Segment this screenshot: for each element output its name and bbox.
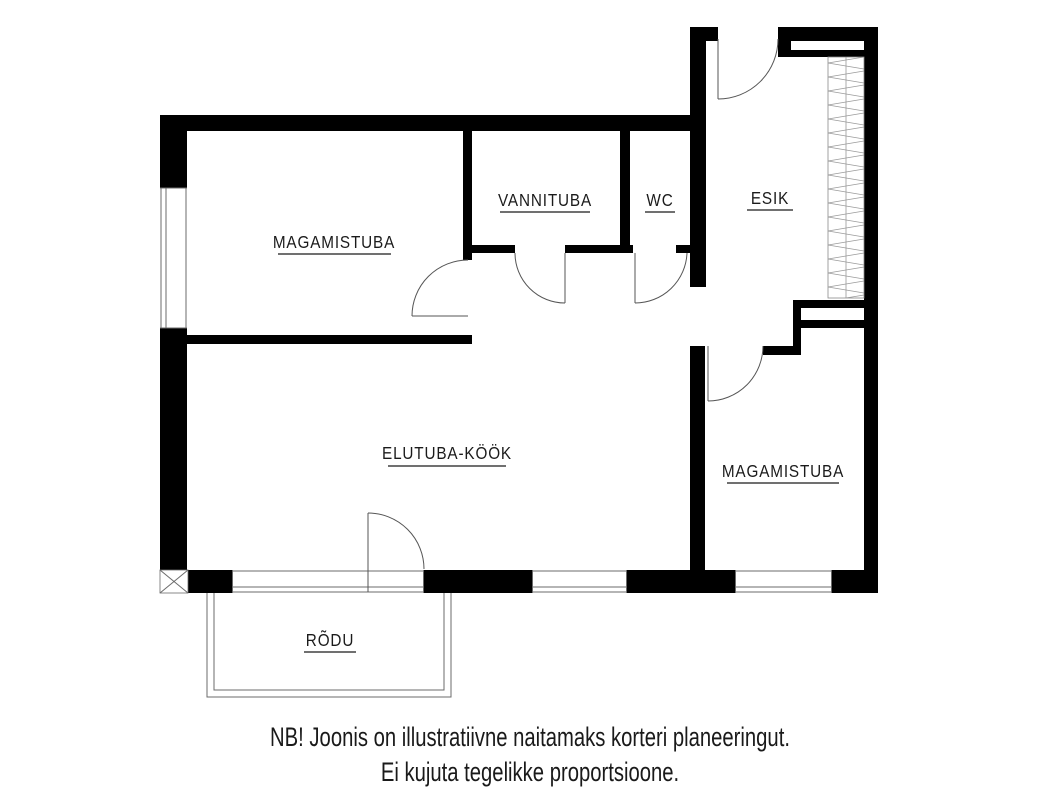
- wardrobe: [828, 57, 864, 298]
- window-bottom-1: [232, 570, 424, 593]
- wall-bedroom2-left: [690, 346, 705, 593]
- window-bottom-2: [532, 570, 627, 593]
- wall-entry-corner-block: [778, 39, 791, 57]
- note-line-1: NB! Joonis on illustratiivne naitamaks k…: [270, 722, 790, 753]
- door-swing-arc: [708, 346, 763, 401]
- wall-bedroom2-top: [763, 346, 801, 355]
- floor-plan: MAGAMISTUBA VANNITUBA WC ESIK ELUTUBA-KÖ…: [0, 0, 1054, 800]
- wall-left-lower: [160, 328, 187, 570]
- corner-marker-bottom-left: [160, 570, 188, 593]
- wall-bathroom-bottom-right: [565, 245, 633, 253]
- wall-top-right-a: [690, 27, 718, 41]
- walls: [160, 27, 878, 593]
- room-label-bedroom1: MAGAMISTUBA: [273, 232, 395, 252]
- room-label-living-kitchen: ELUTUBA-KÖÖK: [382, 443, 512, 463]
- door-swing-arc: [412, 260, 468, 316]
- wall-bedroom1-right: [463, 131, 472, 260]
- wall-bottom-seg3: [627, 570, 735, 593]
- door-swing-arc: [635, 253, 687, 303]
- door-swing-arc: [718, 39, 778, 99]
- window-bottom-3: [735, 570, 832, 593]
- door-entry: [718, 39, 778, 99]
- door-swing-arc: [368, 513, 424, 569]
- door-bathroom: [515, 253, 565, 303]
- door-bedroom1: [412, 260, 468, 316]
- wall-top-right-b: [778, 27, 878, 41]
- room-label-bedroom2: MAGAMISTUBA: [722, 461, 844, 481]
- floorplan-page: MAGAMISTUBA VANNITUBA WC ESIK ELUTUBA-KÖ…: [0, 0, 1054, 800]
- wall-right: [864, 27, 878, 593]
- wall-bathroom-wc-divider: [620, 131, 630, 253]
- room-label-bathroom: VANNITUBA: [498, 190, 592, 210]
- door-bedroom2: [708, 346, 763, 401]
- door-swing-arc: [515, 253, 565, 303]
- room-label-wc: WC: [646, 190, 673, 210]
- wall-bottom-seg2: [424, 570, 532, 593]
- wall-under-strip: [790, 50, 870, 57]
- wall-top-main: [160, 115, 706, 131]
- wall-bedroom1-bottom: [187, 335, 472, 344]
- wall-wc-bottom-stub: [676, 245, 706, 253]
- wall-left-upper: [160, 115, 187, 188]
- window-left: [160, 188, 187, 328]
- wall-bathroom-bottom-left: [468, 245, 515, 253]
- note-line-2: Ei kujuta tegelikke proportsioone.: [381, 757, 679, 788]
- wall-esik-bar-lower: [793, 320, 864, 328]
- room-label-balcony: RÕDU: [306, 629, 354, 651]
- wall-esik-bar-upper: [793, 300, 864, 308]
- door-wc: [635, 253, 687, 303]
- wall-bottom-seg1: [188, 570, 232, 593]
- disclaimer-note: NB! Joonis on illustratiivne naitamaks k…: [270, 722, 790, 788]
- room-label-hallway: ESIK: [751, 188, 789, 208]
